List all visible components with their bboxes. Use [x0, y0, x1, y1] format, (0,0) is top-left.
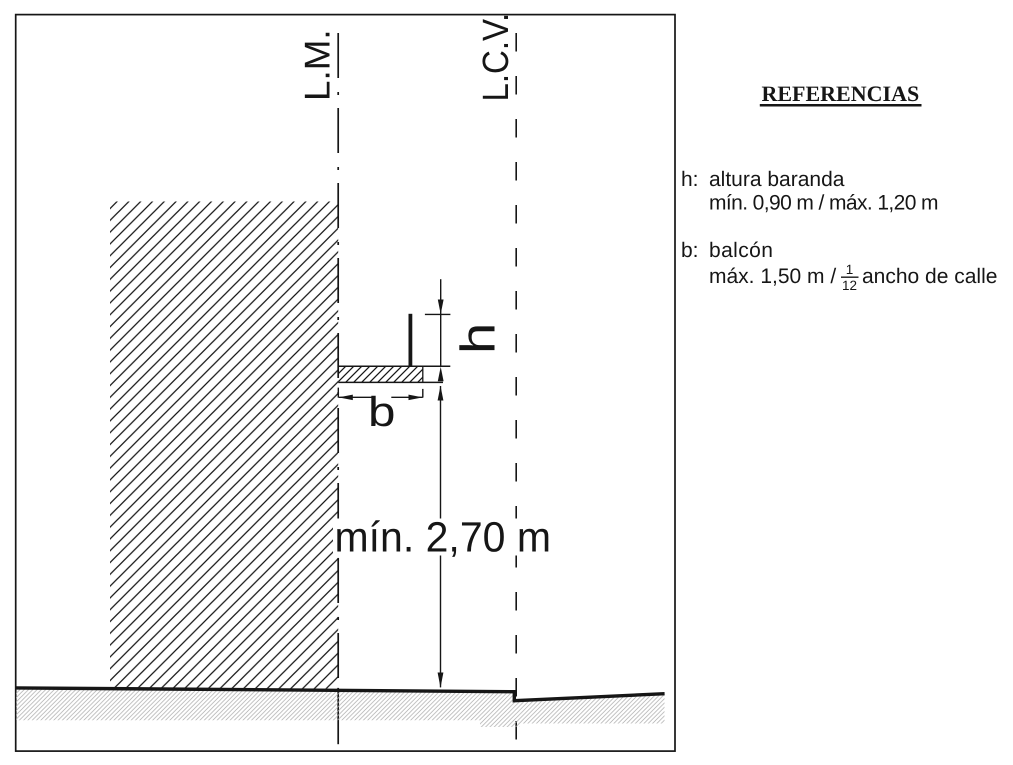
- svg-text:h:: h:: [681, 168, 699, 191]
- svg-text:mín. 2,70 m: mín. 2,70 m: [335, 514, 551, 561]
- svg-text:L.M.: L.M.: [297, 29, 337, 101]
- svg-text:balcón: balcón: [709, 239, 773, 262]
- svg-text:b: b: [368, 390, 395, 436]
- svg-text:12: 12: [842, 278, 857, 293]
- svg-text:mín. 0,90 m / máx. 1,20 m: mín. 0,90 m / máx. 1,20 m: [709, 192, 938, 215]
- svg-text:REFERENCIAS: REFERENCIAS: [762, 81, 920, 106]
- svg-text:altura baranda: altura baranda: [709, 168, 845, 191]
- svg-text:ancho de calle: ancho de calle: [862, 265, 997, 288]
- svg-text:h: h: [451, 323, 505, 354]
- svg-text:máx. 1,50 m /: máx. 1,50 m /: [709, 265, 836, 288]
- svg-text:1: 1: [846, 262, 854, 277]
- svg-text:L.C.V.: L.C.V.: [476, 13, 516, 102]
- svg-text:b:: b:: [681, 239, 699, 262]
